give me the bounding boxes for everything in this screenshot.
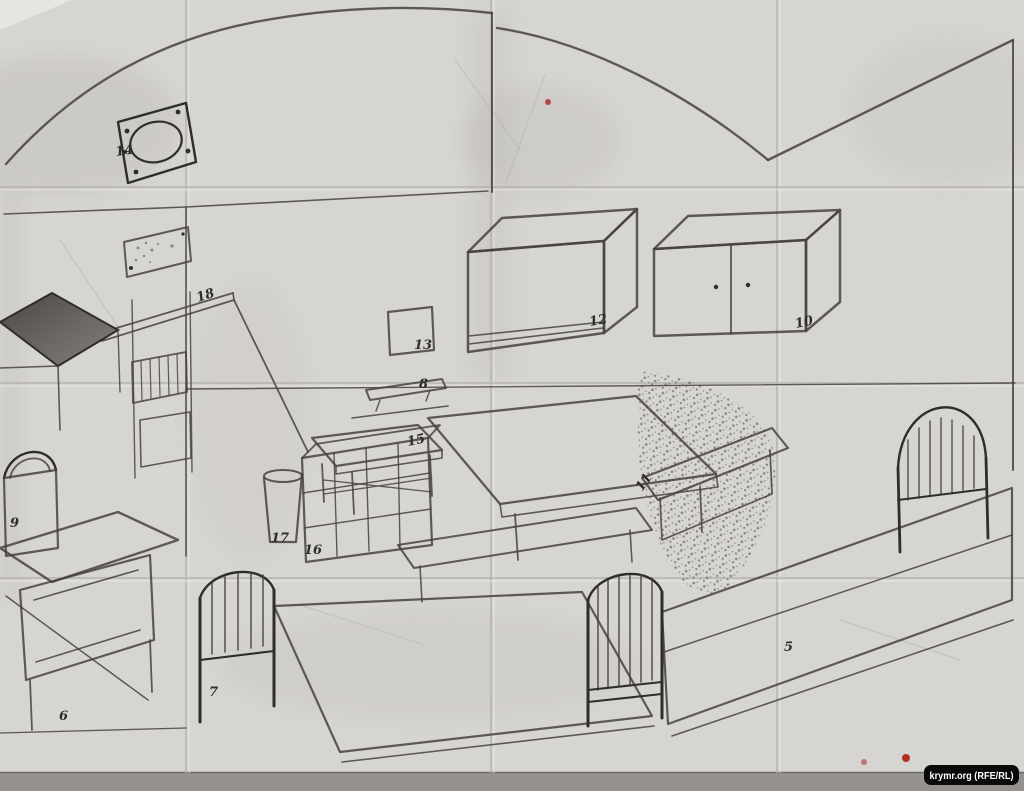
item-number-17: 17 (271, 531, 289, 546)
paper-background (0, 0, 1024, 791)
watermark-text: krymr.org (RFE/RL) (930, 771, 1014, 782)
item-number-5: 5 (784, 640, 793, 655)
item-number-9: 9 (10, 516, 19, 531)
scanner-strip (0, 773, 1024, 791)
item-number-12: 12 (588, 312, 608, 330)
watermark: krymr.org (RFE/RL) (924, 765, 1019, 785)
item-number-7: 7 (209, 685, 218, 700)
scanned-sketch-page: 14 18 13 12 10 8 15 11 17 16 9 6 7 5 kry… (0, 0, 1024, 791)
item-number-13: 13 (414, 338, 432, 353)
item-number-16: 16 (304, 543, 322, 558)
item-number-14: 14 (114, 143, 134, 160)
item-number-8: 8 (419, 377, 428, 392)
item-number-6: 6 (59, 709, 68, 724)
room-sketch: 14 18 13 12 10 8 15 11 17 16 9 6 7 5 kry… (0, 0, 1024, 791)
